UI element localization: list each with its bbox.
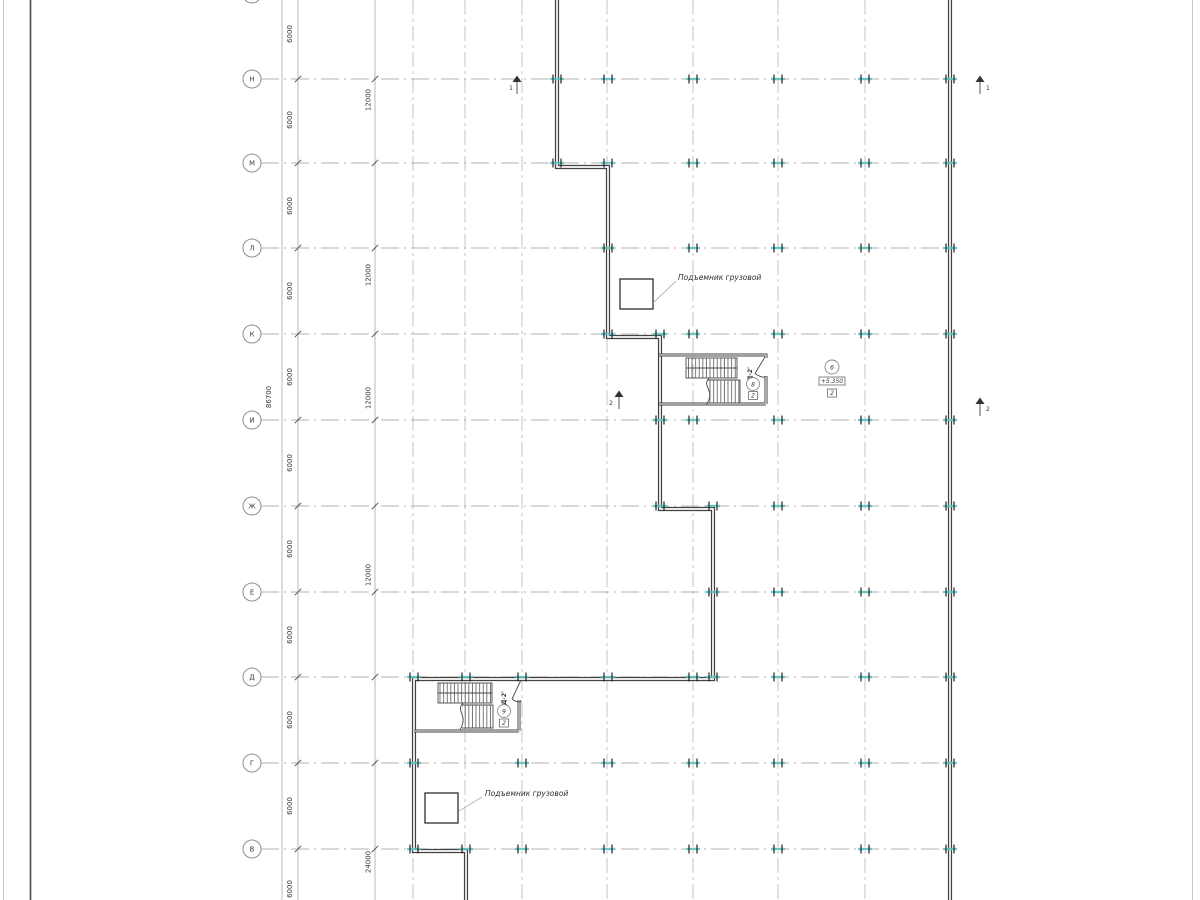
column-tick-band: [943, 247, 957, 249]
dim-6000: 6000: [286, 25, 294, 43]
column-tick-band: [686, 247, 700, 249]
column-tick-band: [706, 591, 720, 593]
column-tick-band: [601, 78, 615, 80]
section-arrow-icon: [976, 398, 985, 405]
stair-room-lower: Д-2' 9 2: [414, 681, 522, 731]
column-tick-band: [601, 762, 615, 764]
column-tick-band: [771, 848, 785, 850]
door-leaf: [755, 357, 765, 374]
column-tick-band: [515, 676, 529, 678]
dim-6000: 6000: [286, 368, 294, 386]
column-tick-band: [771, 78, 785, 80]
section-markers: 1 1 2 2: [509, 76, 990, 417]
leader-line: [459, 797, 482, 811]
stair-room-upper: Д-2' 8 2: [659, 355, 766, 405]
dimension-texts: 6000600060006000600060006000600060006000…: [265, 25, 373, 898]
dim-6000: 6000: [286, 197, 294, 215]
section-1-right: 1: [976, 76, 991, 95]
leader-line: [653, 281, 676, 303]
column-tick-band: [858, 247, 872, 249]
column-tick-band: [771, 762, 785, 764]
level-callout: 6 +5.350 2: [819, 360, 845, 397]
dim-24000: 24000: [365, 851, 373, 873]
axis-label: М: [249, 159, 255, 167]
dim-6000: 6000: [286, 454, 294, 472]
axis-label: К: [250, 330, 255, 338]
column-tick-band: [771, 162, 785, 164]
freight-lift-shaft: [620, 279, 653, 309]
dim-12000: 12000: [365, 387, 373, 409]
column-tick-band: [943, 591, 957, 593]
column-tick-band: [858, 333, 872, 335]
column-tick-band: [601, 247, 615, 249]
column-tick-band: [943, 676, 957, 678]
dim-6000: 6000: [286, 626, 294, 644]
column-tick-band: [407, 676, 421, 678]
column-tick-band: [943, 419, 957, 421]
dim-12000: 12000: [365, 564, 373, 586]
elevation-value: +5.350: [821, 378, 843, 385]
column-tick-band: [686, 762, 700, 764]
column-tick-band: [858, 419, 872, 421]
freight-lift-lower: Подъемник грузовой: [425, 789, 568, 823]
floor-plan-canvas: НМЛКИЖЕДГВ 60006000600060006000600060006…: [0, 0, 1200, 900]
column-tick-band: [686, 419, 700, 421]
column-tick-band: [550, 162, 564, 164]
door-leaf: [512, 681, 521, 699]
dim-total-86700: 86700: [265, 386, 273, 408]
detail-callout-number: 8: [751, 381, 755, 388]
axis-label: Л: [249, 244, 254, 252]
section-number: 2: [609, 400, 613, 407]
column-tick-band: [686, 162, 700, 164]
axis-label: Ж: [248, 502, 256, 510]
sheet-callout-number: 2: [502, 720, 506, 727]
column-tick-band: [653, 419, 667, 421]
freight-lift-upper: Подъемник грузовой: [620, 273, 761, 309]
column-tick-band: [515, 762, 529, 764]
dim-6000: 6000: [286, 880, 294, 898]
sheet-frame: [4, 0, 1193, 900]
column-tick-band: [771, 333, 785, 335]
section-2-left: 2: [609, 391, 623, 410]
dim-12000: 12000: [365, 89, 373, 111]
column-tick-band: [771, 247, 785, 249]
column-tick-band: [943, 78, 957, 80]
column-tick-band: [653, 333, 667, 335]
column-tick-band: [943, 505, 957, 507]
section-number: 1: [509, 85, 513, 92]
section-number: 1: [986, 85, 990, 92]
dim-6000: 6000: [286, 111, 294, 129]
wall-outline-left-core: [414, 0, 713, 900]
section-arrow-icon: [615, 391, 624, 398]
column-markers: [407, 75, 957, 854]
section-arrow-icon: [976, 76, 985, 83]
column-tick-band: [943, 848, 957, 850]
section-1-left: 1: [509, 76, 521, 95]
freight-lift-upper-label: Подъемник грузовой: [678, 273, 761, 282]
column-tick-band: [858, 848, 872, 850]
column-tick-band: [706, 676, 720, 678]
column-tick-band: [686, 78, 700, 80]
axis-label: Е: [250, 588, 254, 596]
dim-6000: 6000: [286, 540, 294, 558]
axis-rows: НМЛКИЖЕДГВ: [243, 0, 950, 858]
column-tick-band: [515, 848, 529, 850]
column-tick-band: [601, 848, 615, 850]
column-tick-band: [686, 333, 700, 335]
dim-6000: 6000: [286, 797, 294, 815]
column-tick-band: [653, 505, 667, 507]
axis-label: Д: [249, 673, 254, 681]
column-tick-band: [550, 78, 564, 80]
column-tick-band: [601, 676, 615, 678]
column-tick-band: [771, 505, 785, 507]
detail-callout-number: 9: [502, 708, 506, 715]
column-tick-band: [858, 162, 872, 164]
column-tick-band: [943, 762, 957, 764]
column-tick-band: [858, 676, 872, 678]
column-tick-band: [407, 762, 421, 764]
axis-label: Г: [250, 759, 254, 767]
stair-flight: [462, 705, 493, 728]
column-tick-band: [858, 78, 872, 80]
column-tick-band: [943, 333, 957, 335]
door-mark-lower: Д-2': [501, 691, 508, 706]
wall-outline-left: [414, 0, 713, 900]
axis-bubble-partial: [243, 0, 261, 3]
column-tick-band: [706, 505, 720, 507]
column-tick-band: [858, 505, 872, 507]
stair-flight: [708, 380, 740, 403]
dim-6000: 6000: [286, 282, 294, 300]
section-2-right: 2: [976, 398, 991, 417]
column-tick-band: [459, 848, 473, 850]
freight-lift-lower-label: Подъемник грузовой: [485, 789, 568, 798]
detail-callout-number: 6: [830, 364, 834, 371]
axis-label: Н: [249, 75, 254, 83]
sheet-callout-number: 2: [751, 393, 755, 400]
column-tick-band: [686, 676, 700, 678]
axis-label: И: [249, 416, 254, 424]
door-swing-arc: [755, 374, 766, 378]
column-tick-band: [943, 162, 957, 164]
column-tick-band: [686, 848, 700, 850]
column-tick-band: [771, 676, 785, 678]
axis-label: В: [250, 845, 255, 853]
section-number: 2: [986, 406, 990, 413]
column-tick-band: [601, 333, 615, 335]
freight-lift-shaft: [425, 793, 458, 823]
sheet-callout-number: 2: [830, 390, 834, 397]
column-tick-band: [601, 162, 615, 164]
column-tick-band: [858, 591, 872, 593]
dim-6000: 6000: [286, 711, 294, 729]
column-tick-band: [858, 762, 872, 764]
column-tick-band: [771, 419, 785, 421]
grid-columns: [413, 0, 865, 900]
column-tick-band: [459, 676, 473, 678]
column-tick-band: [407, 848, 421, 850]
column-tick-band: [771, 591, 785, 593]
dim-12000: 12000: [365, 264, 373, 286]
